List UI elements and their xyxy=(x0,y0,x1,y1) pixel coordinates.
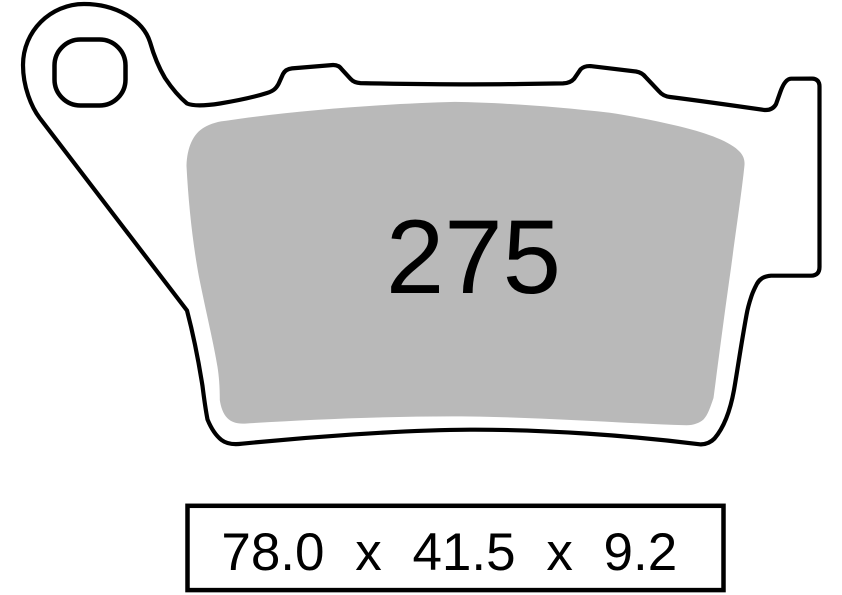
svg-text:275: 275 xyxy=(386,199,561,316)
svg-text:78.0 x 41.5 x 9.2: 78.0 x 41.5 x 9.2 xyxy=(221,523,677,582)
